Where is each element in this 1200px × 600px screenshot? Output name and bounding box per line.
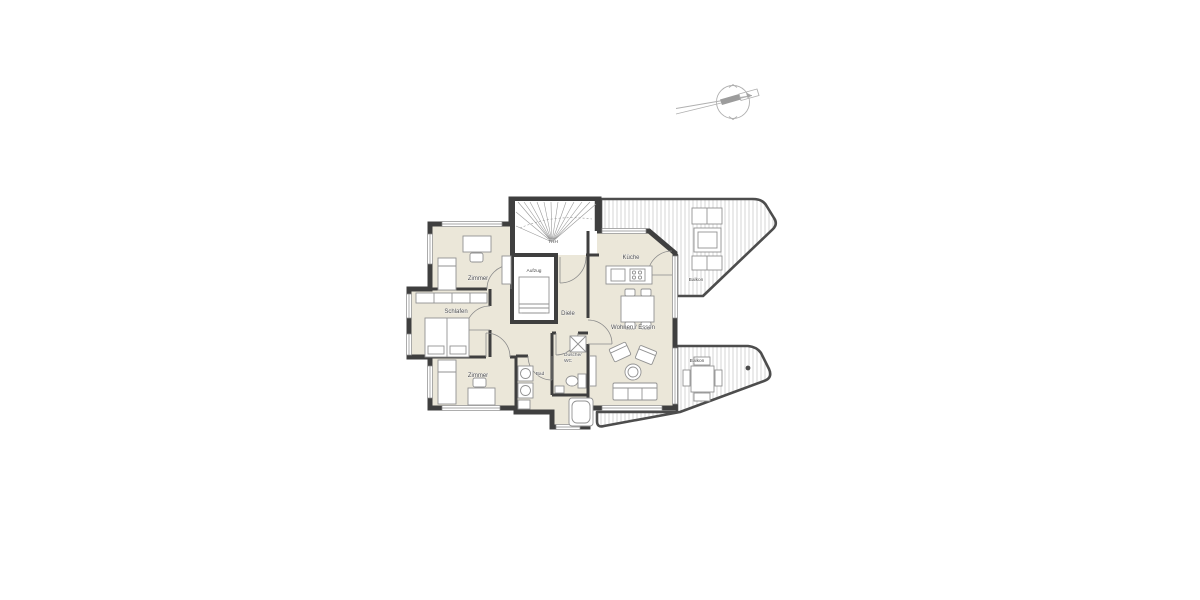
room-label-balkon-bottom: Balkon <box>690 358 705 364</box>
stairwell: TRH <box>510 199 599 257</box>
window <box>673 256 678 318</box>
window <box>428 234 433 264</box>
column-dot <box>746 366 751 371</box>
window <box>428 366 433 398</box>
window <box>442 222 502 227</box>
room-label-schlafen: Schlafen <box>444 309 467 315</box>
room-label-zimmer-bottom: Zimmer <box>468 373 488 379</box>
room-label-trh: TRH <box>548 239 558 245</box>
balcony-top-furniture <box>692 208 722 270</box>
window <box>407 334 412 355</box>
room-label-wohnen-essen: Wohnen / Essen <box>611 325 655 331</box>
window <box>602 406 662 411</box>
window <box>442 406 500 411</box>
room-label-aufzug: Aufzug <box>527 268 542 274</box>
floor-plan-drawing: TRH Aufzug <box>0 0 1200 600</box>
window <box>602 229 646 234</box>
north-arrow-icon <box>676 85 759 120</box>
room-label-zimmer-top: Zimmer <box>468 276 488 282</box>
room-label-wc: WC <box>564 358 573 364</box>
window <box>407 294 412 318</box>
elevator: Aufzug <box>512 255 556 322</box>
room-label-balkon-top: Balkon <box>689 277 704 283</box>
room-label-kueche: Küche <box>622 255 640 261</box>
window <box>673 348 678 404</box>
floor-plan-page: TRH Aufzug <box>0 0 1200 600</box>
room-label-dusche: Dusche/ <box>564 352 582 358</box>
room-label-bad: Bad <box>536 371 545 377</box>
furniture-kueche <box>606 266 652 284</box>
room-label-diele: Diele <box>561 311 575 317</box>
